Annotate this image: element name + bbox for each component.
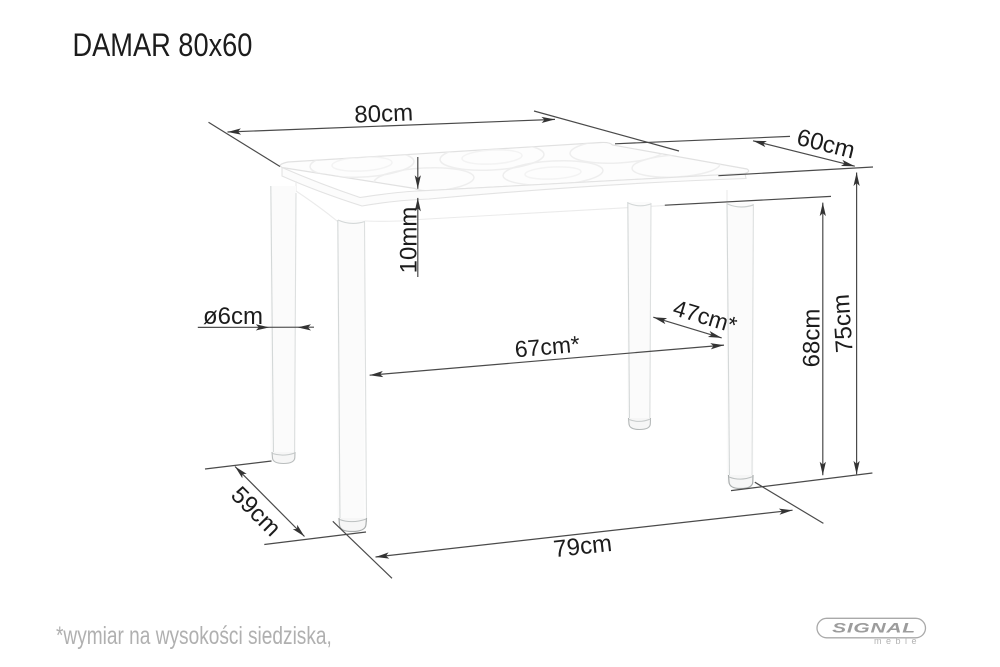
svg-text:75cm: 75cm — [828, 293, 859, 353]
svg-text:80cm: 80cm — [354, 99, 414, 128]
svg-text:*wymiar na wysokości siedziska: *wymiar na wysokości siedziska, — [56, 622, 332, 650]
svg-text:59cm: 59cm — [225, 481, 286, 542]
svg-text:68cm: 68cm — [798, 309, 825, 368]
svg-text:SIGNAL: SIGNAL — [832, 620, 916, 636]
svg-text:meble: meble — [874, 636, 921, 646]
svg-text:79cm: 79cm — [552, 530, 613, 563]
svg-text:10mm: 10mm — [396, 207, 423, 274]
svg-text:DAMAR 80x60: DAMAR 80x60 — [72, 28, 252, 64]
svg-text:ø6cm: ø6cm — [203, 303, 263, 330]
